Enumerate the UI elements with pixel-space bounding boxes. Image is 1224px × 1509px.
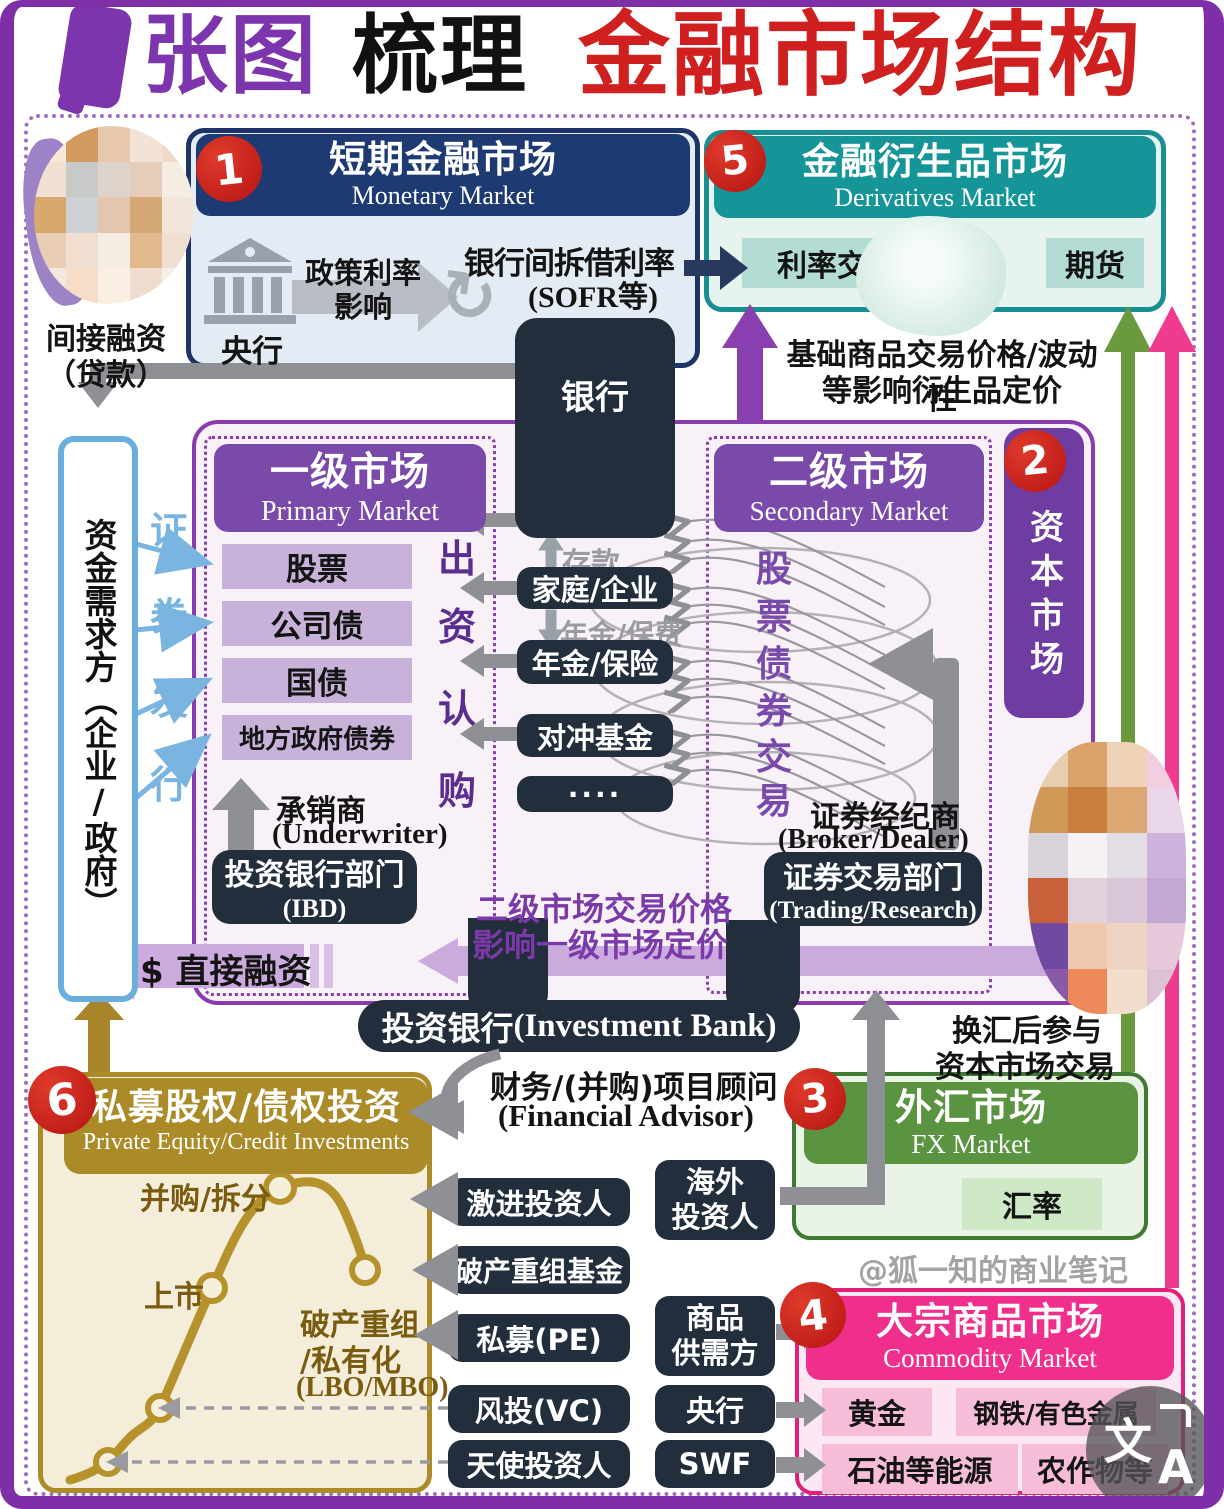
- investment-bank-cn: 投资银行: [381, 1002, 513, 1050]
- issuance-char-3: 发: [150, 670, 188, 725]
- commodity-party-line1: 商品: [686, 1301, 744, 1336]
- policy-rate-line2: 影响: [296, 284, 430, 326]
- pe-fund-box: 私募(PE): [448, 1314, 630, 1362]
- interbank-rate-note: (SOFR等): [528, 272, 658, 316]
- secondary-subtitle: Secondary Market: [714, 497, 984, 527]
- angel-investor-box: 天使投资人: [448, 1440, 630, 1488]
- bank-box: 银行: [515, 318, 675, 538]
- translate-icon-corner: [1160, 1404, 1191, 1427]
- fx-subtitle: FX Market: [804, 1130, 1138, 1160]
- overseas-line1: 海外: [686, 1165, 744, 1200]
- others-box: ····: [517, 776, 673, 812]
- direct-financing-label: $ 直接融资: [140, 944, 312, 993]
- sec-char-2: 票: [756, 588, 792, 640]
- monetary-title: 短期金融市场: [196, 138, 690, 182]
- watermark: @狐一知的商业笔记: [858, 1246, 1128, 1290]
- advisor-line2: (Financial Advisor): [498, 1098, 754, 1134]
- fx-note-line2: 资本市场交易: [900, 1042, 1150, 1086]
- blurred-blob-derivatives: [856, 216, 1006, 336]
- issuance-char-1: 证: [150, 500, 188, 555]
- underwriter-en-label: (Underwriter): [272, 818, 448, 851]
- central-bank-investor-box: 央行: [655, 1385, 775, 1433]
- monetary-subtitle: Monetary Market: [196, 182, 690, 211]
- pricing-note-line2: 影响一级市场定价: [472, 920, 728, 966]
- ibd-en-label: (IBD): [283, 894, 347, 924]
- primary-title: 一级市场: [214, 450, 486, 497]
- primary-header: 一级市场 Primary Market: [214, 444, 486, 532]
- secondary-title: 二级市场: [714, 450, 984, 497]
- translate-icon-en: A: [1158, 1440, 1194, 1494]
- indirect-financing-label: 间接融资 （贷款）: [46, 322, 166, 394]
- commodity-party-box: 商品 供需方: [655, 1296, 775, 1376]
- stock-item: 股票: [222, 544, 412, 589]
- annuity-box: 年金/保险: [517, 640, 673, 684]
- sec-char-6: 易: [756, 772, 792, 824]
- derivatives-subtitle: Derivatives Market: [714, 184, 1156, 213]
- commodity-subtitle: Commodity Market: [806, 1344, 1174, 1374]
- trading-en-label: (Trading/Research): [769, 897, 976, 925]
- vc-box: 风投(VC): [448, 1385, 630, 1433]
- pe-title: 私募股权/债权投资: [64, 1086, 428, 1129]
- bank-label: 银行: [561, 370, 629, 419]
- activist-investor-box: 激进投资人: [448, 1178, 630, 1226]
- gold-item: 黄金: [822, 1388, 932, 1436]
- derivatives-title: 金融衍生品市场: [714, 140, 1156, 184]
- sec-char-4: 券: [756, 682, 792, 734]
- fx-rate-item: 汇率: [962, 1178, 1102, 1230]
- title-part1: 张图: [142, 2, 318, 110]
- title-part2: 梳理: [352, 2, 528, 110]
- trading-box: 证券交易部门 (Trading/Research): [764, 852, 982, 926]
- infographic-canvas: 张图 梳理 金融市场结构: [0, 0, 1224, 1509]
- investment-bank-bar: 投资银行 (Investment Bank): [358, 1000, 800, 1052]
- issuance-char-2: 券: [150, 586, 188, 641]
- ibd-label: 投资银行部门: [225, 850, 405, 894]
- commodity-party-line2: 供需方: [671, 1336, 758, 1371]
- household-box: 家庭/企业: [517, 567, 673, 609]
- derivatives-header: 金融衍生品市场 Derivatives Market: [714, 136, 1156, 218]
- translate-icon: 文 A: [1086, 1386, 1214, 1509]
- derivatives-note-line2: 等影响衍生品定价: [772, 366, 1112, 410]
- sec-char-3: 债: [756, 635, 792, 687]
- pe-label-ma: 并购/拆分: [140, 1174, 271, 1218]
- commodity-title: 大宗商品市场: [806, 1300, 1174, 1344]
- pixelated-blob-right: [1028, 742, 1186, 1014]
- subscribe-char-4: 购: [438, 760, 476, 815]
- indirect-line1: 间接融资: [46, 322, 166, 358]
- secondary-header: 二级市场 Secondary Market: [714, 444, 984, 532]
- fx-header: 外汇市场 FX Market: [804, 1082, 1138, 1164]
- pe-header: 私募股权/债权投资 Private Equity/Credit Investme…: [64, 1078, 428, 1174]
- fund-demand-box: 资金需求方（企业/政府）: [58, 436, 138, 1002]
- pe-subtitle: Private Equity/Credit Investments: [64, 1129, 428, 1155]
- commodity-header: 大宗商品市场 Commodity Market: [806, 1296, 1174, 1380]
- gov-bond-item: 国债: [222, 658, 412, 703]
- sec-char-1: 股: [756, 540, 792, 592]
- overseas-line2: 投资人: [671, 1200, 758, 1235]
- central-bank-label: 央行: [204, 326, 300, 371]
- swf-box: SWF: [655, 1440, 775, 1488]
- subscribe-char-2: 资: [438, 596, 476, 651]
- translate-icon-cn: 文: [1104, 1402, 1152, 1472]
- issuance-char-4: 行: [150, 754, 188, 809]
- title-part3: 金融市场结构: [578, 2, 1142, 110]
- investment-bank-en: (Investment Bank): [513, 1008, 776, 1045]
- distressed-fund-box: 破产重组基金: [448, 1246, 630, 1294]
- subscribe-char-3: 认: [438, 678, 476, 733]
- ibd-box: 投资银行部门 (IBD): [212, 850, 417, 924]
- primary-subtitle: Primary Market: [214, 497, 486, 528]
- trading-label: 证券交易部门: [783, 853, 963, 897]
- pe-label-ipo: 上市: [144, 1272, 204, 1316]
- monetary-header: 短期金融市场 Monetary Market: [196, 134, 690, 216]
- corp-bond-item: 公司债: [222, 601, 412, 646]
- oil-item: 石油等能源: [822, 1444, 1018, 1494]
- fx-title: 外汇市场: [804, 1086, 1138, 1130]
- subscribe-char-1: 出: [438, 528, 476, 583]
- hedge-fund-box: 对冲基金: [517, 714, 673, 757]
- muni-bond-item: 地方政府债券: [222, 715, 412, 760]
- indirect-line2: （贷款）: [46, 358, 166, 394]
- pe-label-lbo3: (LBO/MBO): [296, 1372, 448, 1404]
- futures-item: 期货: [1046, 238, 1144, 288]
- overseas-investor-box: 海外 投资人: [655, 1160, 775, 1240]
